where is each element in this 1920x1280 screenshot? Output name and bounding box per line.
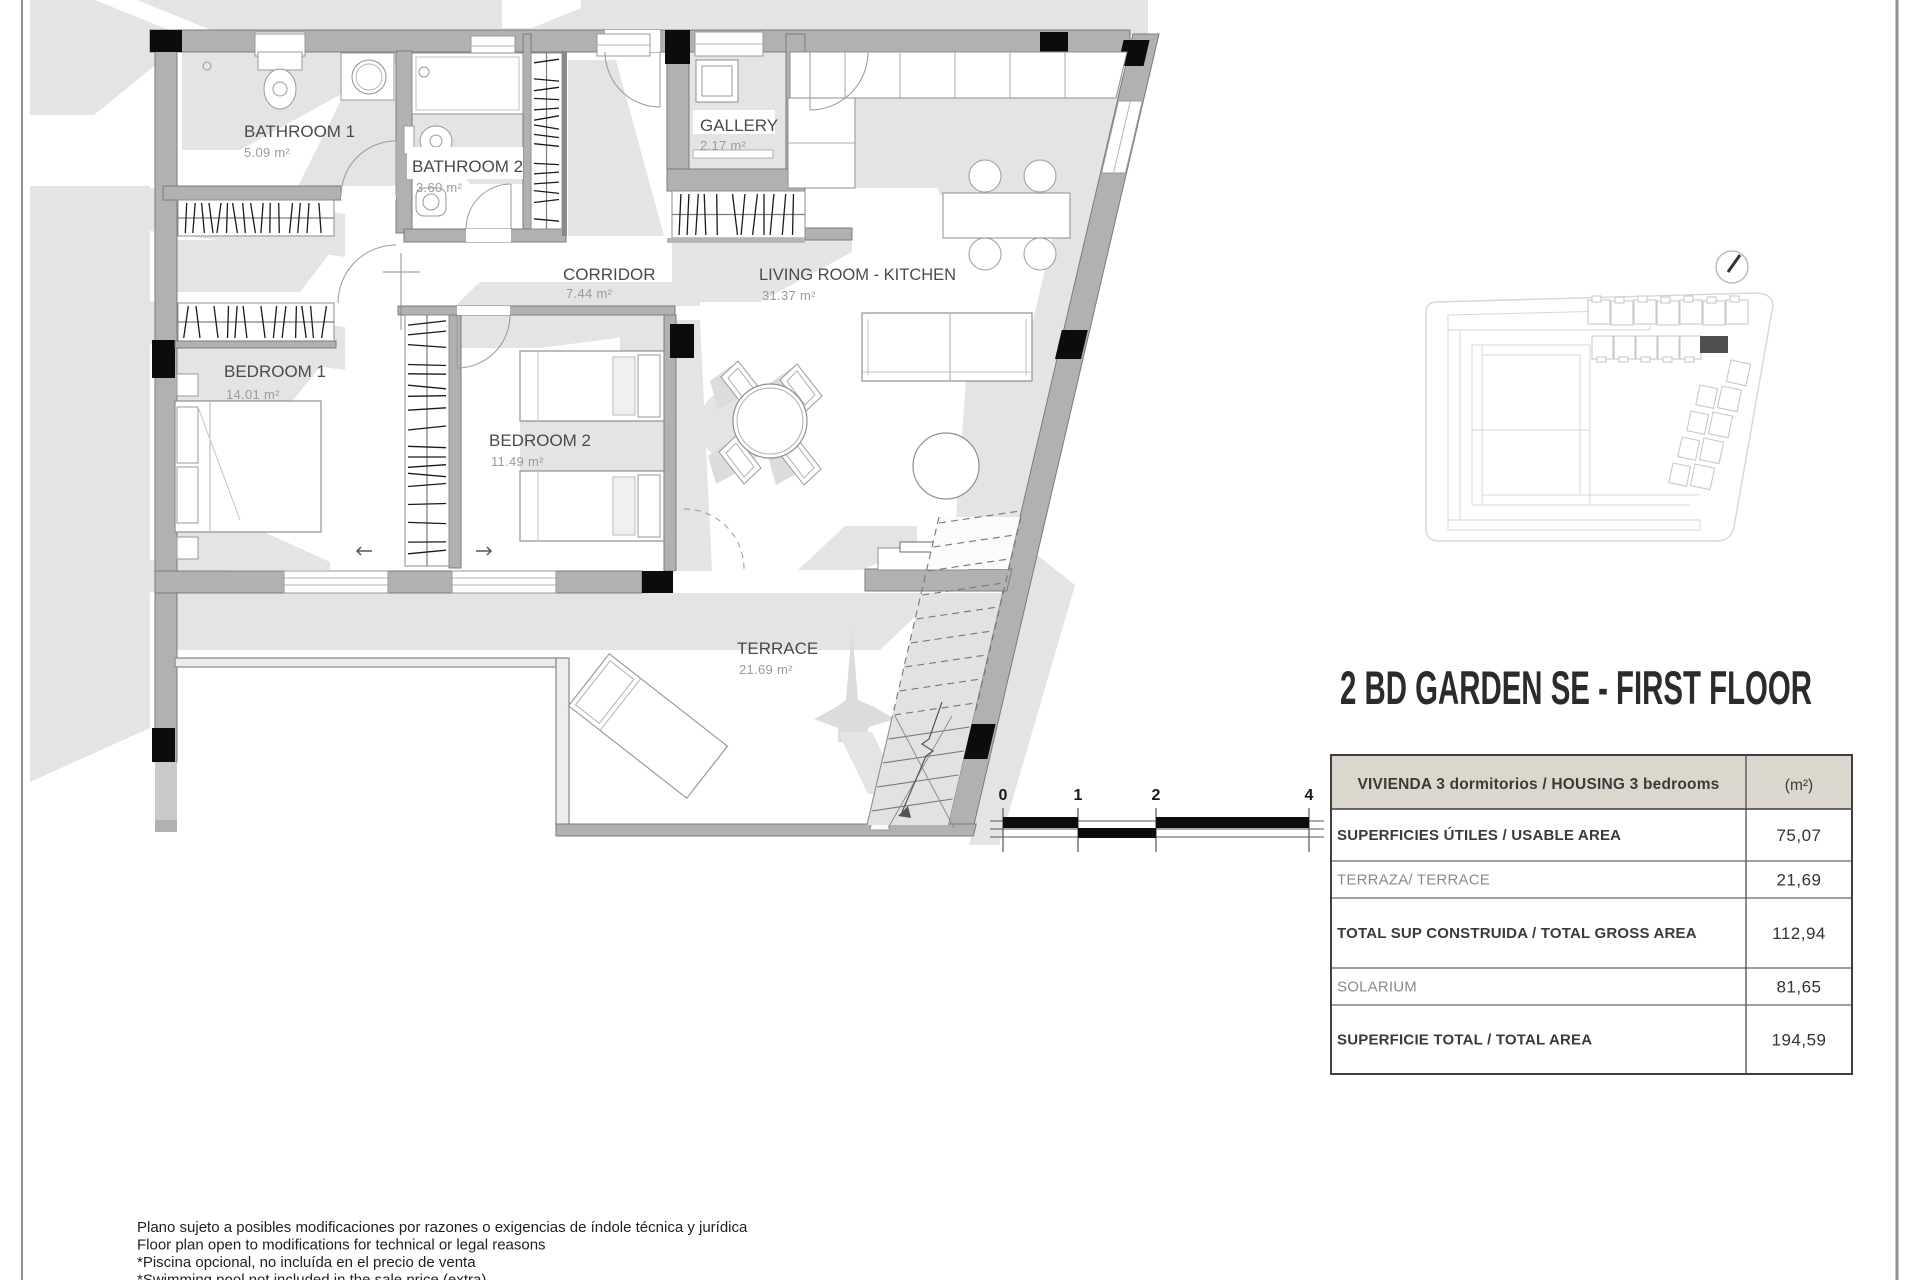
svg-text:31.37 m²: 31.37 m² bbox=[762, 288, 816, 303]
svg-text:TOTAL SUP CONSTRUIDA / TOTAL G: TOTAL SUP CONSTRUIDA / TOTAL GROSS AREA bbox=[1337, 925, 1697, 942]
svg-text:14.01 m²: 14.01 m² bbox=[226, 387, 280, 402]
svg-text:BATHROOM 2: BATHROOM 2 bbox=[412, 157, 523, 176]
svg-text:(m²): (m²) bbox=[1785, 777, 1813, 794]
svg-text:112,94: 112,94 bbox=[1772, 924, 1826, 943]
svg-text:21.69 m²: 21.69 m² bbox=[739, 662, 793, 677]
svg-text:3.60 m²: 3.60 m² bbox=[416, 180, 463, 195]
svg-text:*Piscina opcional, no incluída: *Piscina opcional, no incluída en el pre… bbox=[137, 1254, 476, 1271]
svg-text:BEDROOM 2: BEDROOM 2 bbox=[489, 431, 591, 450]
svg-text:BEDROOM 1: BEDROOM 1 bbox=[224, 362, 326, 381]
svg-text:Plano sujeto a posibles modifi: Plano sujeto a posibles modificaciones p… bbox=[137, 1219, 748, 1236]
svg-text:VIVIENDA 3 dormitorios / HOUSI: VIVIENDA 3 dormitorios / HOUSING 3 bedro… bbox=[1358, 776, 1720, 793]
svg-text:2: 2 bbox=[1152, 787, 1161, 804]
svg-text:0: 0 bbox=[999, 787, 1008, 804]
svg-text:2.17 m²: 2.17 m² bbox=[700, 138, 747, 153]
svg-text:2 BD GARDEN SE - FIRST FLOOR: 2 BD GARDEN SE - FIRST FLOOR bbox=[1340, 661, 1812, 714]
svg-text:81,65: 81,65 bbox=[1776, 978, 1821, 997]
svg-text:Floor plan open to modificatio: Floor plan open to modifications for tec… bbox=[137, 1237, 546, 1254]
svg-text:194,59: 194,59 bbox=[1772, 1031, 1827, 1050]
svg-text:*Swimming pool not included in: *Swimming pool not included in the sale … bbox=[137, 1272, 486, 1280]
svg-text:1: 1 bbox=[1074, 787, 1083, 804]
svg-text:SOLARIUM: SOLARIUM bbox=[1337, 979, 1417, 996]
svg-text:LIVING ROOM - KITCHEN: LIVING ROOM - KITCHEN bbox=[759, 266, 956, 284]
svg-text:TERRAZA/ TERRACE: TERRAZA/ TERRACE bbox=[1337, 872, 1490, 889]
svg-text:11.49 m²: 11.49 m² bbox=[491, 454, 544, 469]
svg-text:21,69: 21,69 bbox=[1776, 871, 1821, 890]
svg-text:4: 4 bbox=[1305, 787, 1314, 804]
svg-text:5.09 m²: 5.09 m² bbox=[244, 145, 291, 160]
svg-text:BATHROOM 1: BATHROOM 1 bbox=[244, 122, 355, 141]
svg-text:CORRIDOR: CORRIDOR bbox=[563, 265, 656, 284]
svg-text:TERRACE: TERRACE bbox=[737, 639, 818, 658]
svg-text:SUPERFICIES ÚTILES / USABLE AR: SUPERFICIES ÚTILES / USABLE AREA bbox=[1337, 826, 1621, 844]
svg-text:75,07: 75,07 bbox=[1776, 826, 1821, 845]
svg-text:GALLERY: GALLERY bbox=[700, 116, 778, 135]
svg-text:7.44 m²: 7.44 m² bbox=[566, 286, 613, 301]
svg-text:SUPERFICIE TOTAL / TOTAL AREA: SUPERFICIE TOTAL / TOTAL AREA bbox=[1337, 1032, 1592, 1049]
